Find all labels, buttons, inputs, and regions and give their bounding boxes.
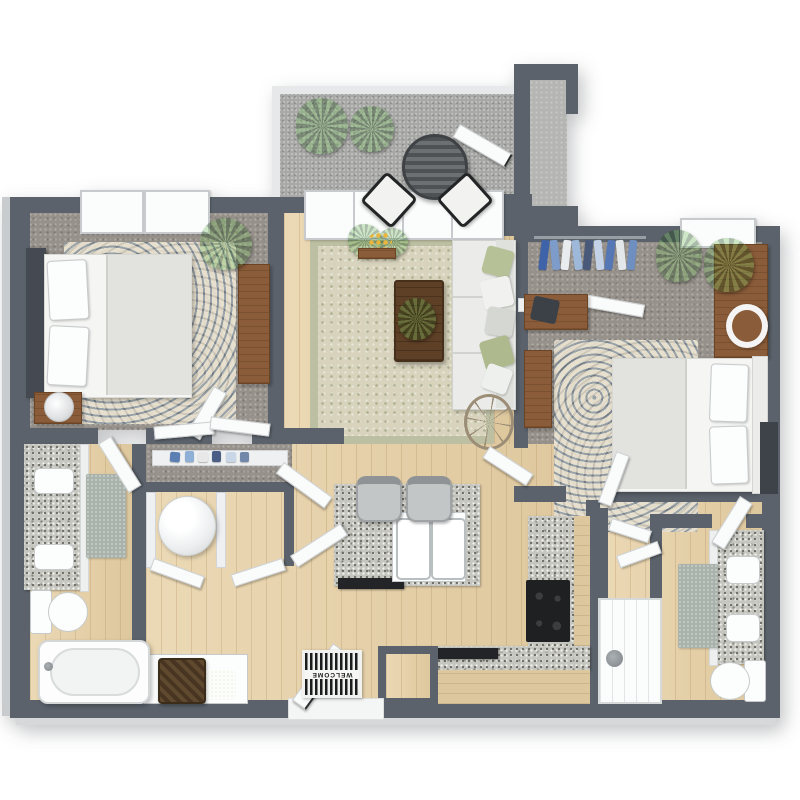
bathroom2-sink-1: [726, 556, 760, 584]
bedroom1-lamp: [44, 392, 74, 422]
outer-edge-left: [2, 197, 10, 716]
wall-bedroom2-bottom-a: [514, 486, 566, 502]
bedroom2-closet-rod: [534, 236, 646, 239]
side-table: [464, 394, 514, 450]
bar-stool-1: [356, 476, 402, 522]
pantry-floor: [386, 654, 430, 698]
hall-cushion: [206, 670, 236, 700]
sofa-pillow-white-1: [479, 275, 515, 311]
bedroom2-bench: [524, 350, 552, 428]
bedroom1-pillow-1: [46, 259, 89, 321]
bathroom1-mat: [86, 474, 126, 558]
wall-bedroom1-living: [268, 197, 284, 444]
bathroom2-vanity: [716, 530, 764, 664]
bedroom2-dresser-plant: [704, 238, 754, 292]
corridor-floor: [529, 80, 567, 210]
bedroom2-plant-1: [656, 230, 702, 282]
bedroom1-plant: [200, 218, 252, 270]
wall-corridor-left: [514, 64, 530, 234]
floor-plan-canvas: WELCOME: [0, 0, 800, 800]
bedroom2-dresser-tray: [726, 304, 768, 348]
bathroom2-toilet-bowl: [710, 662, 750, 700]
shelf-item-6: [240, 452, 249, 462]
bathtub-inner: [50, 648, 140, 696]
wall-hall-closet-bottom: [146, 482, 292, 492]
wall-bath2-top-a: [650, 514, 712, 528]
bedroom2-pillow-1: [709, 363, 749, 422]
stove: [526, 580, 570, 642]
apartment-floor-plan: WELCOME: [0, 0, 800, 800]
kitchen-pantry: [378, 646, 438, 706]
bedroom2-pillow-2: [709, 425, 749, 484]
island-sink-right: [431, 518, 466, 580]
sofa-pillow-gray: [484, 306, 516, 338]
kitchen-appliance-front: [434, 648, 498, 659]
wall-washer-closet-left: [146, 492, 156, 568]
wall-washer-closet-mid: [216, 492, 226, 568]
bathroom1-toilet-bowl: [48, 592, 88, 632]
bedroom1-window-1: [80, 190, 144, 234]
bedroom2-window-dark: [760, 422, 778, 494]
balcony-railing-top: [272, 86, 518, 94]
shelf-item-5: [226, 452, 236, 462]
balcony-plant-2: [350, 106, 394, 152]
kitchen-cabinet-horizontal: [412, 670, 590, 704]
shelf-item-4: [212, 451, 221, 462]
bar-stool-2: [406, 476, 452, 522]
island-sink-left: [396, 518, 431, 580]
hall-basket: [158, 658, 206, 704]
bathroom2-mat: [678, 564, 718, 648]
welcome-mat-text: WELCOME: [305, 670, 359, 679]
kitchen-cabinet-vertical: [574, 516, 590, 646]
wall-corridor-right: [566, 64, 578, 114]
bathroom1-sink-1: [34, 468, 74, 494]
shelf-item-3: [198, 452, 208, 462]
bedroom1-blanket: [106, 255, 191, 395]
coffee-table-plant: [398, 298, 436, 340]
bedroom2-desk-chair: [530, 296, 560, 325]
living-planter-box: [358, 248, 396, 259]
washer: [158, 496, 216, 556]
wall-bath2-top-b: [746, 514, 762, 528]
shelf-item-1: [170, 452, 181, 463]
shelf-item-2: [185, 451, 194, 462]
welcome-mat: WELCOME: [302, 650, 362, 698]
wall-living-bottom-stub: [284, 428, 344, 444]
bedroom1-window-2: [144, 190, 210, 234]
shower: [598, 598, 662, 704]
bedroom1-bench: [238, 264, 270, 384]
balcony-plant-1: [296, 98, 348, 154]
wall-bedroom1-bottom-a: [10, 428, 98, 444]
wall-bath2-closet-left: [598, 508, 608, 604]
bathroom2-sink-2: [726, 614, 760, 642]
bedroom1-headboard: [26, 248, 46, 398]
shower-head: [606, 650, 623, 667]
bathtub-faucet: [44, 662, 53, 671]
bedroom1-pillow-2: [46, 325, 89, 387]
bathroom1-sink-2: [34, 544, 74, 570]
